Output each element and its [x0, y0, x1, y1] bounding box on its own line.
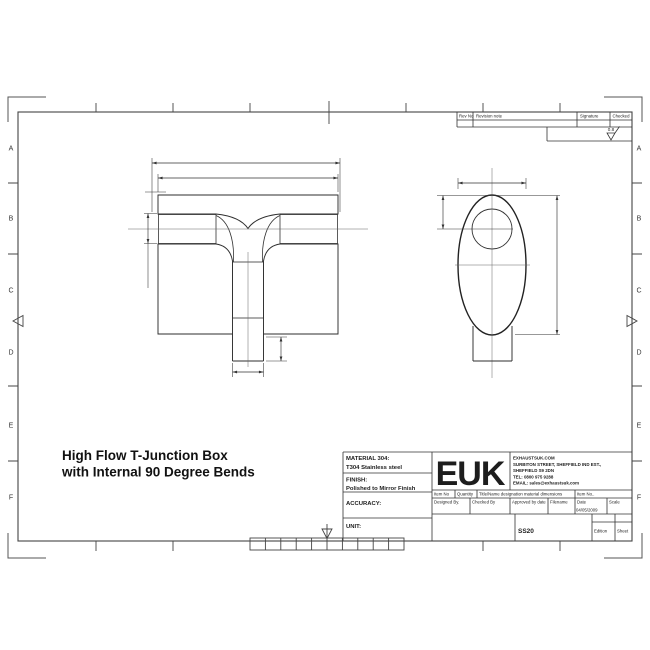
zone-letter: B [637, 216, 642, 223]
zone-letter: C [636, 288, 641, 295]
zone-letter: B [9, 216, 14, 223]
checked-by-header: Checked By [472, 500, 496, 505]
item-no2-header: Item No.. [577, 492, 594, 497]
zone-letter: D [8, 350, 13, 357]
edition-label: Edition [594, 529, 608, 534]
company-address-line1: SURBITON STREET, SHEFFIELD IND EST., [513, 462, 601, 467]
corner-mark-bottom-left [8, 533, 46, 558]
finish-label: FINISH: [346, 478, 367, 484]
accuracy-label: ACCURACY: [346, 501, 381, 507]
checked-header: Checked [613, 114, 631, 119]
sheet-frame: A B C D E F A B C D E F [8, 97, 642, 558]
material-value: T304 Stainless steel [346, 465, 402, 471]
zone-letter: E [637, 423, 642, 430]
company-website: EXHAUSTSUK.COM [513, 456, 555, 461]
front-section-view [128, 158, 368, 377]
company-logo: EUK [436, 455, 506, 493]
junction-box-top-wall [158, 195, 338, 229]
zone-ticks-top [96, 103, 560, 112]
date-value: 04/05/2009 [576, 508, 598, 513]
material-label: MATERIAL 304: [346, 456, 389, 462]
part-number: SS20 [518, 528, 534, 535]
item-no-header: Item No [434, 492, 450, 497]
zone-letter: A [637, 146, 642, 153]
zone-ticks-left [8, 183, 18, 461]
zone-letter: D [636, 350, 641, 357]
company-address: EXHAUSTSUK.COM SURBITON STREET, SHEFFIEL… [513, 456, 601, 486]
engineering-drawing: A B C D E F A B C D E F Rev No Revision … [0, 0, 650, 650]
zone-letter: C [8, 288, 13, 295]
drawing-title: High Flow T-Junction Box with Internal 9… [61, 448, 255, 480]
designation-header: Title/Name designation material dimensio… [479, 492, 562, 497]
junction-box-bottom-right [264, 244, 339, 334]
drawing-title-line1: High Flow T-Junction Box [62, 448, 228, 463]
company-email: EMAIL: sales@exhaustsuk.com [513, 481, 579, 486]
zone-letter: F [9, 495, 13, 502]
filename-header: Filename [550, 500, 568, 505]
scale-header: Scale [609, 500, 620, 505]
zone-ticks-right [632, 183, 642, 461]
front-view-dimensions [144, 158, 340, 377]
corner-mark-bottom-right [604, 533, 642, 558]
company-tel: TEL: 0800 975 9288 [513, 474, 554, 479]
revision-note-header: Revision note [476, 114, 503, 119]
side-view [437, 168, 560, 378]
designed-by-header: Designed By. [434, 500, 459, 505]
outlet-stub-end-view [473, 326, 512, 361]
side-view-dimensions [437, 178, 560, 335]
junction-box-bottom-left [158, 244, 233, 334]
drawing-sheet: A B C D E F A B C D E F Rev No Revision … [0, 0, 650, 650]
company-address-line2: SHEFFIELD S9 2DN [513, 468, 554, 473]
title-block: MATERIAL 304: T304 Stainless steel FINIS… [343, 452, 632, 541]
revision-table: Rev No Revision note Signature Checked [457, 112, 632, 127]
zone-letter: F [637, 495, 641, 502]
corner-mark-top-left [8, 97, 46, 122]
zone-letter: A [9, 146, 14, 153]
centering-ruler [250, 524, 404, 550]
surface-finish-symbol: 0.8 [547, 127, 632, 142]
finish-value: Polished to Mirror Finish [346, 486, 416, 492]
date-header: Date [577, 500, 587, 505]
rev-no-header: Rev No [459, 114, 474, 119]
surface-finish-value: 0.8 [608, 127, 615, 132]
quantity-header: Quantity [457, 492, 474, 497]
zone-letter: E [9, 423, 14, 430]
drawing-title-line2: with Internal 90 Degree Bends [61, 465, 255, 480]
unit-label: UNIT: [346, 524, 361, 530]
sheet-label: Sheet [617, 529, 629, 534]
signature-header: Signature [580, 114, 599, 119]
approved-by-header: Approved by date [512, 500, 546, 505]
zone-ticks-bottom [96, 541, 560, 551]
